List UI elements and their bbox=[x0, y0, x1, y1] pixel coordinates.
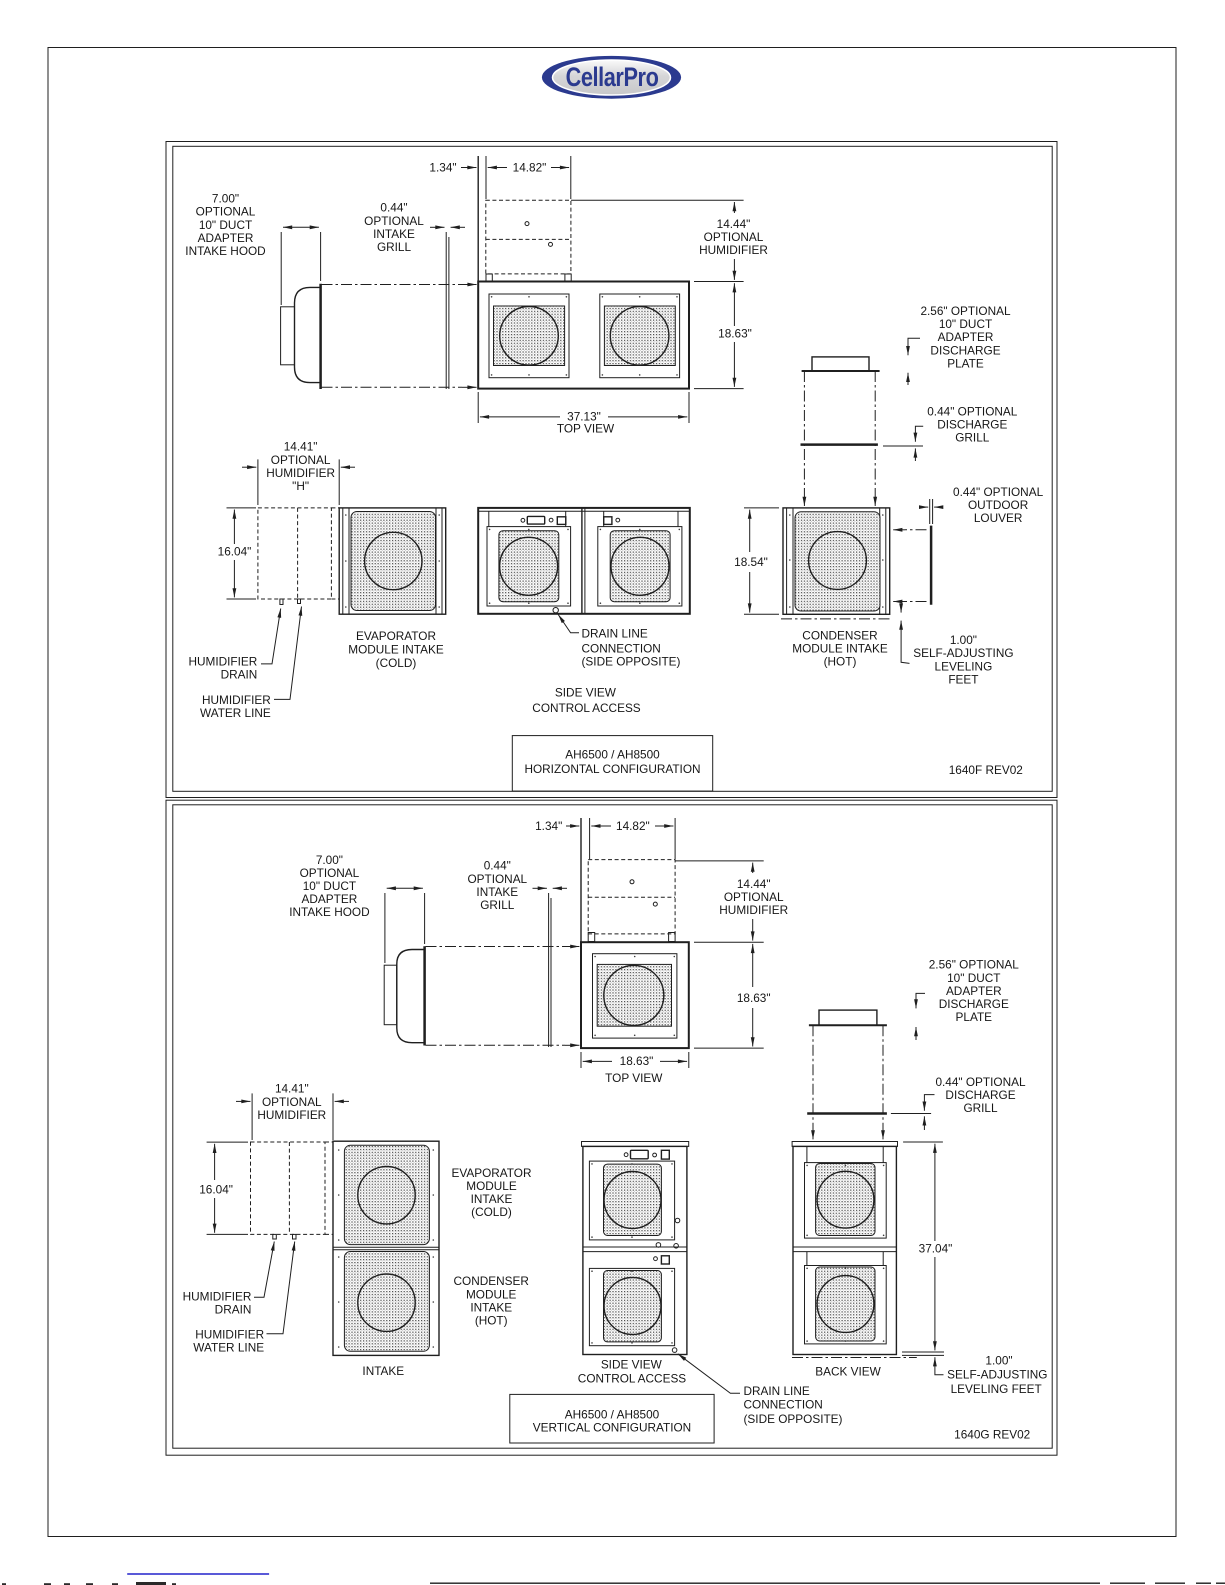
svg-text:INTAKE: INTAKE bbox=[470, 1300, 512, 1314]
svg-text:18.63": 18.63" bbox=[737, 991, 771, 1005]
svg-text:OPTIONAL: OPTIONAL bbox=[364, 214, 424, 228]
svg-text:TOP VIEW: TOP VIEW bbox=[557, 421, 615, 435]
svg-text:HUMIDIFIER: HUMIDIFIER bbox=[195, 1327, 264, 1341]
svg-text:GRILL: GRILL bbox=[955, 431, 990, 445]
svg-text:HORIZONTAL CONFIGURATION: HORIZONTAL CONFIGURATION bbox=[524, 762, 700, 776]
svg-text:14.82": 14.82" bbox=[513, 160, 547, 174]
svg-text:(SIDE OPPOSITE): (SIDE OPPOSITE) bbox=[582, 654, 681, 668]
svg-text:DISCHARGE: DISCHARGE bbox=[937, 418, 1007, 432]
svg-text:HUMIDIFIER: HUMIDIFIER bbox=[188, 655, 257, 669]
svg-text:(HOT): (HOT) bbox=[475, 1314, 508, 1328]
svg-text:1640G REV02: 1640G REV02 bbox=[954, 1428, 1030, 1442]
svg-text:DRAIN: DRAIN bbox=[215, 1303, 252, 1317]
svg-text:INTAKE: INTAKE bbox=[362, 1364, 404, 1378]
svg-text:ADAPTER: ADAPTER bbox=[938, 330, 994, 344]
svg-text:(COLD): (COLD) bbox=[471, 1205, 512, 1219]
svg-text:10" DUCT: 10" DUCT bbox=[199, 218, 252, 232]
svg-text:INTAKE HOOD: INTAKE HOOD bbox=[289, 905, 369, 919]
svg-text:HUMIDIFIER: HUMIDIFIER bbox=[266, 466, 335, 480]
svg-text:(HOT): (HOT) bbox=[824, 655, 857, 669]
svg-text:16.04": 16.04" bbox=[218, 545, 252, 559]
svg-text:CellarPro: CellarPro bbox=[566, 63, 659, 93]
svg-text:VERTICAL CONFIGURATION: VERTICAL CONFIGURATION bbox=[533, 1420, 691, 1434]
svg-text:GRILL: GRILL bbox=[480, 898, 515, 912]
svg-text:DISCHARGE: DISCHARGE bbox=[939, 997, 1009, 1011]
svg-text:14.44": 14.44" bbox=[717, 217, 751, 231]
svg-text:SIDE VIEW: SIDE VIEW bbox=[601, 1357, 663, 1371]
svg-text:HUMIDIFIER: HUMIDIFIER bbox=[719, 903, 788, 917]
svg-text:18.63": 18.63" bbox=[620, 1054, 654, 1068]
svg-text:AH6500 / AH8500: AH6500 / AH8500 bbox=[565, 748, 660, 762]
svg-text:(COLD): (COLD) bbox=[376, 656, 417, 670]
svg-text:CONDENSER: CONDENSER bbox=[802, 629, 877, 643]
svg-text:10" DUCT: 10" DUCT bbox=[303, 879, 356, 893]
svg-text:INTAKE HOOD: INTAKE HOOD bbox=[185, 244, 265, 258]
svg-text:WATER LINE: WATER LINE bbox=[193, 1340, 264, 1354]
svg-text:DISCHARGE: DISCHARGE bbox=[945, 1088, 1015, 1102]
svg-text:2.56" OPTIONAL: 2.56" OPTIONAL bbox=[929, 958, 1020, 972]
svg-text:PLATE: PLATE bbox=[956, 1010, 993, 1024]
svg-text:OPTIONAL: OPTIONAL bbox=[724, 890, 784, 904]
svg-text:ADAPTER: ADAPTER bbox=[198, 231, 254, 245]
svg-text:CONNECTION: CONNECTION bbox=[744, 1398, 823, 1412]
svg-text:1.34": 1.34" bbox=[429, 160, 456, 174]
svg-text:1640F REV02: 1640F REV02 bbox=[949, 763, 1023, 777]
svg-text:GRILL: GRILL bbox=[377, 240, 412, 254]
svg-text:MODULE: MODULE bbox=[466, 1287, 517, 1301]
svg-text:OPTIONAL: OPTIONAL bbox=[196, 205, 256, 219]
svg-text:SELF-ADJUSTING: SELF-ADJUSTING bbox=[947, 1367, 1047, 1381]
svg-text:DRAIN LINE: DRAIN LINE bbox=[582, 627, 648, 641]
svg-text:MODULE INTAKE: MODULE INTAKE bbox=[792, 642, 888, 656]
svg-text:HUMIDIFIER: HUMIDIFIER bbox=[257, 1108, 326, 1122]
svg-text:TOP VIEW: TOP VIEW bbox=[605, 1071, 663, 1085]
svg-text:LEVELING: LEVELING bbox=[935, 659, 993, 673]
svg-text:OPTIONAL: OPTIONAL bbox=[300, 866, 360, 880]
svg-text:CONTROL ACCESS: CONTROL ACCESS bbox=[578, 1371, 687, 1385]
svg-text:0.44" OPTIONAL: 0.44" OPTIONAL bbox=[935, 1075, 1026, 1089]
svg-text:18.54": 18.54" bbox=[734, 555, 768, 569]
svg-text:CONNECTION: CONNECTION bbox=[582, 641, 661, 655]
svg-text:PLATE: PLATE bbox=[947, 356, 984, 370]
svg-text:HUMIDIFIER: HUMIDIFIER bbox=[699, 243, 768, 257]
svg-text:0.44" OPTIONAL: 0.44" OPTIONAL bbox=[953, 485, 1044, 499]
svg-text:0.44": 0.44" bbox=[484, 859, 511, 873]
svg-text:BACK VIEW: BACK VIEW bbox=[815, 1364, 881, 1378]
svg-text:CONTROL ACCESS: CONTROL ACCESS bbox=[532, 701, 641, 715]
svg-text:EVAPORATOR: EVAPORATOR bbox=[356, 629, 436, 643]
svg-text:OUTDOOR: OUTDOOR bbox=[968, 498, 1028, 512]
svg-text:10" DUCT: 10" DUCT bbox=[947, 971, 1000, 985]
svg-text:1.00": 1.00" bbox=[950, 633, 977, 647]
svg-text:0.44": 0.44" bbox=[380, 201, 407, 215]
svg-text:DRAIN LINE: DRAIN LINE bbox=[744, 1384, 810, 1398]
svg-text:OPTIONAL: OPTIONAL bbox=[262, 1095, 322, 1109]
svg-text:MODULE INTAKE: MODULE INTAKE bbox=[348, 643, 444, 657]
svg-text:0.44" OPTIONAL: 0.44" OPTIONAL bbox=[927, 404, 1018, 418]
svg-text:1.34": 1.34" bbox=[535, 819, 562, 833]
svg-text:INTAKE: INTAKE bbox=[373, 227, 415, 241]
svg-text:CONDENSER: CONDENSER bbox=[454, 1274, 529, 1288]
svg-text:18.63": 18.63" bbox=[718, 327, 752, 341]
svg-text:INTAKE: INTAKE bbox=[476, 885, 518, 899]
svg-text:14.41": 14.41" bbox=[275, 1082, 309, 1096]
svg-text:OPTIONAL: OPTIONAL bbox=[271, 453, 331, 467]
svg-text:EVAPORATOR: EVAPORATOR bbox=[452, 1166, 532, 1180]
svg-text:FEET: FEET bbox=[948, 672, 978, 686]
svg-text:7.00": 7.00" bbox=[316, 853, 343, 867]
svg-text:HUMIDIFIER: HUMIDIFIER bbox=[183, 1290, 252, 1304]
svg-text:WATER LINE: WATER LINE bbox=[200, 706, 271, 720]
svg-text:7.00": 7.00" bbox=[212, 192, 239, 206]
svg-text:"H": "H" bbox=[292, 479, 309, 493]
svg-text:SIDE VIEW: SIDE VIEW bbox=[555, 686, 617, 700]
svg-text:16.04": 16.04" bbox=[199, 1182, 233, 1196]
svg-text:14.82": 14.82" bbox=[616, 819, 650, 833]
svg-text:LEVELING FEET: LEVELING FEET bbox=[951, 1382, 1042, 1396]
svg-text:AH6500 / AH8500: AH6500 / AH8500 bbox=[565, 1407, 660, 1421]
svg-text:14.41": 14.41" bbox=[284, 440, 318, 454]
svg-text:LOUVER: LOUVER bbox=[974, 511, 1023, 525]
svg-text:OPTIONAL: OPTIONAL bbox=[704, 230, 764, 244]
svg-text:2.56" OPTIONAL: 2.56" OPTIONAL bbox=[920, 304, 1011, 318]
svg-text:GRILL: GRILL bbox=[963, 1101, 998, 1115]
svg-text:1.00": 1.00" bbox=[985, 1354, 1012, 1368]
svg-text:37.04": 37.04" bbox=[919, 1241, 953, 1255]
svg-text:DRAIN: DRAIN bbox=[221, 668, 258, 682]
svg-text:OPTIONAL: OPTIONAL bbox=[467, 872, 527, 886]
svg-text:INTAKE: INTAKE bbox=[471, 1192, 513, 1206]
svg-text:SELF-ADJUSTING: SELF-ADJUSTING bbox=[913, 646, 1013, 660]
svg-text:DISCHARGE: DISCHARGE bbox=[930, 343, 1000, 357]
svg-text:MODULE: MODULE bbox=[466, 1179, 517, 1193]
svg-text:(SIDE OPPOSITE): (SIDE OPPOSITE) bbox=[744, 1412, 843, 1426]
svg-text:HUMIDIFIER: HUMIDIFIER bbox=[202, 693, 271, 707]
svg-text:ADAPTER: ADAPTER bbox=[302, 892, 358, 906]
svg-text:10" DUCT: 10" DUCT bbox=[939, 317, 992, 331]
svg-text:ADAPTER: ADAPTER bbox=[946, 984, 1002, 998]
svg-text:14.44": 14.44" bbox=[737, 877, 771, 891]
